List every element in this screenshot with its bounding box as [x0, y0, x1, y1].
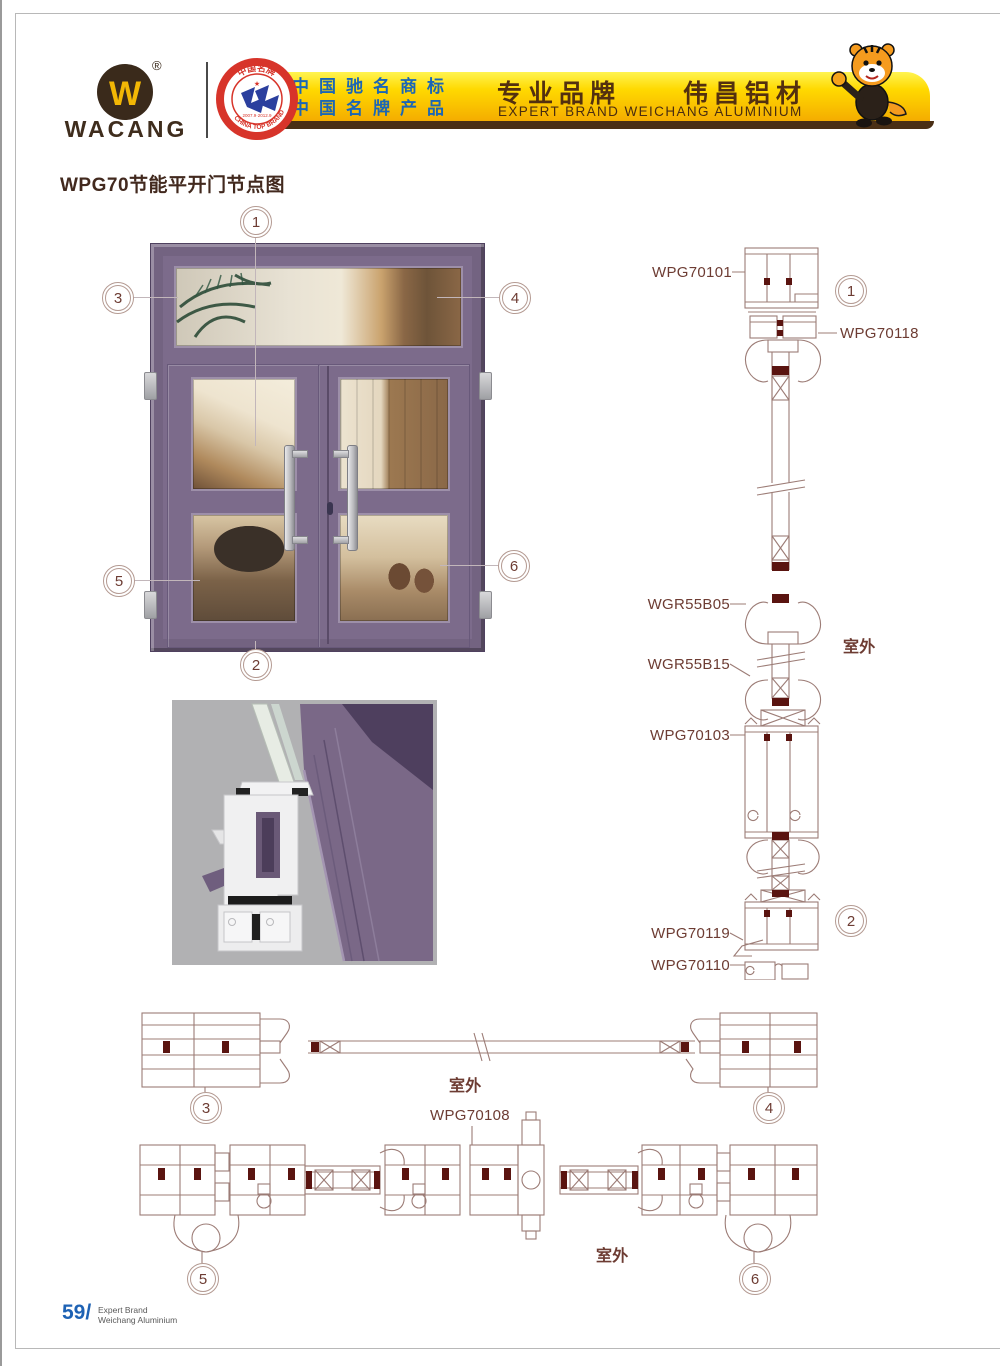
section-callout-2: 2 — [835, 905, 867, 937]
hinge-top-right — [479, 372, 492, 400]
banner-claims: 中国驰名商标 中国名牌产品 — [292, 76, 454, 120]
section-callout-5: 5 — [187, 1263, 219, 1295]
label-wpg70118: WPG70118 — [840, 325, 919, 342]
seal-years: 2007.9·2012.9 — [242, 113, 272, 118]
header-divider — [206, 62, 208, 138]
banner-subtitle: EXPERT BRAND WEICHANG ALUMINIUM — [498, 104, 803, 119]
china-top-brand-seal: 中国名牌 CHINA TOP BRAND ★ ★ 2007.9·2012.9 — [215, 57, 299, 141]
page-title: WPG70节能平开门节点图 — [60, 170, 285, 197]
section-callout-1: 1 — [835, 275, 867, 307]
door-callout-5: 5 — [103, 565, 135, 597]
logo-letter: W — [109, 77, 141, 111]
label-wpg70110: WPG70110 — [638, 957, 730, 974]
banner-claim-1: 中国驰名商标 — [292, 76, 454, 98]
wacang-logo-icon: W — [97, 64, 153, 120]
seal-star-left: ★ — [254, 68, 259, 75]
leader-door-6 — [440, 565, 498, 566]
page-left-edge — [0, 0, 2, 1366]
footer-brand-line2: Weichang Aluminium — [98, 1315, 177, 1325]
page-number-slash: / — [85, 1301, 91, 1324]
label-wgr55b15: WGR55B15 — [638, 656, 730, 673]
hinge-bottom-right — [479, 591, 492, 619]
section-callout-6: 6 — [739, 1263, 771, 1295]
leader-door-5 — [133, 580, 200, 581]
brand-name: WACANG — [55, 116, 197, 143]
tiger-mascot — [826, 40, 910, 128]
label-outdoor-bottom: 室外 — [596, 1242, 629, 1266]
page-number: 59/ — [62, 1301, 91, 1325]
label-wpg70108: WPG70108 — [430, 1107, 510, 1124]
right-handle-stub-top — [333, 450, 349, 458]
label-wpg70119: WPG70119 — [638, 925, 730, 942]
left-handle-stub-bottom — [292, 536, 308, 544]
door-callout-2: 2 — [240, 649, 272, 681]
door-callout-4: 4 — [499, 282, 531, 314]
catalog-page: W ® WACANG 中国驰名商标 中国名牌产品 专业品牌 伟昌铝材 EXPER… — [0, 0, 1000, 1366]
door-callout-1: 1 — [240, 206, 272, 238]
door-callout-6: 6 — [498, 550, 530, 582]
left-upper-glass — [191, 377, 297, 491]
profile-3d-render — [172, 700, 437, 965]
leader-door-4 — [437, 297, 499, 298]
hinge-top-left — [144, 372, 157, 400]
left-lower-glass — [191, 513, 297, 623]
leader-door-3 — [132, 297, 178, 298]
svg-text:★: ★ — [254, 80, 260, 88]
footer-brand-line1: Expert Brand — [98, 1305, 177, 1315]
hinge-bottom-left — [144, 591, 157, 619]
label-wpg70103: WPG70103 — [638, 727, 730, 744]
label-outdoor-middle: 室外 — [449, 1072, 482, 1096]
footer-brand-text: Expert Brand Weichang Aluminium — [98, 1305, 177, 1325]
leader-door-1 — [255, 236, 256, 446]
door-illustration — [150, 243, 485, 652]
right-handle-stub-bottom — [333, 536, 349, 544]
registered-mark: ® — [152, 58, 162, 73]
keyhole — [327, 502, 333, 515]
palm-leaves — [175, 267, 305, 343]
door-callout-3: 3 — [102, 282, 134, 314]
label-outdoor-vertical: 室外 — [843, 633, 876, 657]
banner-claim-2: 中国名牌产品 — [292, 98, 454, 120]
label-wpg70101: WPG70101 — [640, 264, 732, 281]
left-handle-stub-top — [292, 450, 308, 458]
label-wgr55b05: WGR55B05 — [638, 596, 730, 613]
